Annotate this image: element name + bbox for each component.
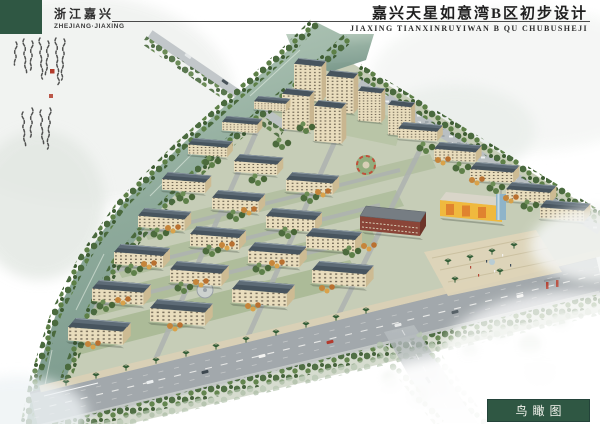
red-seal-stamp-2 (49, 94, 53, 98)
drawing-caption: 鸟瞰图 (487, 399, 590, 422)
presentation-sheet: 浙江嘉兴 ZHEJIANG·JIAXING 嘉兴天星如意湾B区初步设计 JIAX… (0, 0, 600, 424)
birdseye-rendering (0, 0, 600, 424)
region-title-cn: 浙江嘉兴 (54, 5, 114, 22)
central-garden (356, 155, 376, 175)
project-title-cn: 嘉兴天星如意湾B区初步设计 (372, 2, 588, 23)
fountain (489, 259, 495, 265)
calligraphy-inscription (6, 36, 76, 166)
project-title-en: JIAXING TIANXINRUYIWAN B QU CHUBUSHEJI (350, 24, 588, 33)
brand-green-block (0, 0, 42, 34)
region-title-en: ZHEJIANG·JIAXING (54, 23, 125, 30)
red-seal-stamp (50, 69, 55, 74)
caption-label: 鸟瞰图 (515, 402, 566, 419)
